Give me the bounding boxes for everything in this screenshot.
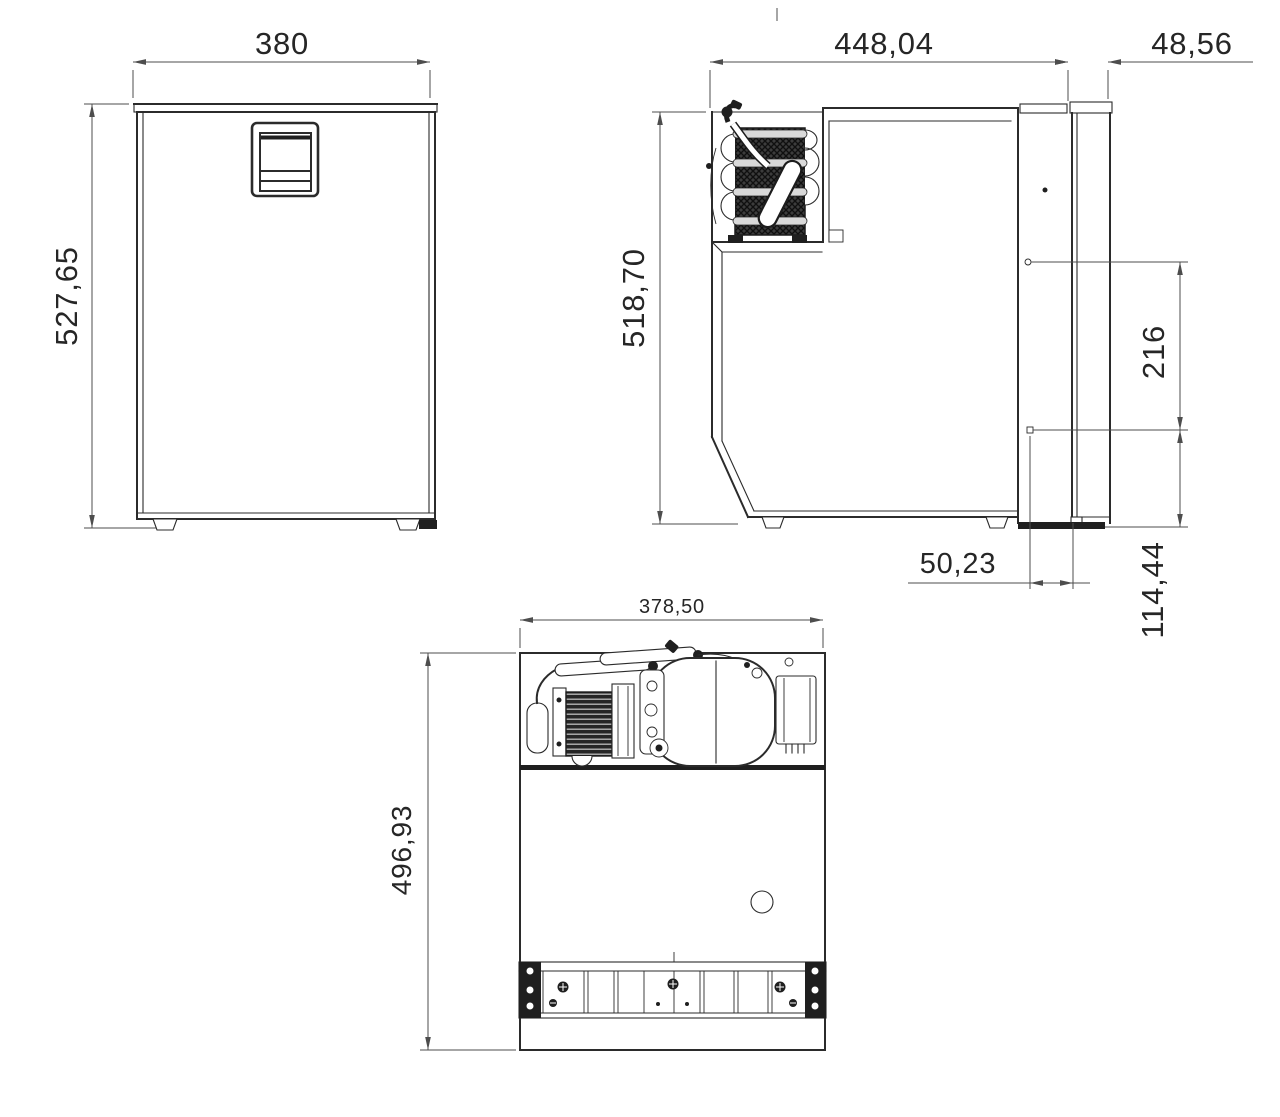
front-right-foot <box>396 519 420 530</box>
side-door-top-cap <box>1070 102 1112 113</box>
side-bottom-gasket <box>1018 522 1105 529</box>
plan-condenser-fan <box>553 684 634 766</box>
plan-compartment-divider <box>520 765 825 770</box>
front-cabinet <box>134 104 437 530</box>
side-door <box>1018 102 1112 529</box>
side-base-height-label: 114,44 <box>1135 541 1170 638</box>
front-left-foot <box>153 519 177 530</box>
side-dim-upper-offset: 216 <box>1025 259 1188 430</box>
side-front-foot <box>986 517 1008 528</box>
side-front-top-cap <box>1020 104 1067 113</box>
technical-drawing-canvas: 380 527,65 <box>0 0 1280 1117</box>
side-height-label: 518,70 <box>616 248 651 348</box>
dimension-drawing: 380 527,65 <box>0 0 1280 1117</box>
front-hinge-cover <box>419 520 437 529</box>
front-view: 380 527,65 <box>49 26 437 530</box>
front-width-label: 380 <box>255 26 309 61</box>
side-rear-foot <box>762 517 784 528</box>
side-upper-offset-label: 216 <box>1136 325 1171 379</box>
side-condenser-unit <box>706 99 819 243</box>
front-top-cap <box>134 104 437 112</box>
side-dim-recess-depth: 50,23 <box>908 436 1090 589</box>
plan-muffler <box>527 703 548 753</box>
side-dim-base-height: 114,44 <box>1027 427 1188 639</box>
plan-dim-width: 378,50 <box>520 596 823 648</box>
side-dim-height: 518,70 <box>616 112 738 524</box>
front-dim-width: 380 <box>133 26 430 98</box>
side-dim-depth: 448,04 <box>710 26 1108 108</box>
front-door-handle <box>252 123 318 196</box>
front-height-label: 527,65 <box>49 246 84 346</box>
plan-dim-depth: 496,93 <box>386 653 516 1050</box>
plan-view: 378,50 496,93 <box>386 596 826 1050</box>
side-dim-door-thickness: 48,56 <box>1048 26 1253 62</box>
side-front-dot <box>1043 188 1048 193</box>
side-recess-depth-label: 50,23 <box>920 548 997 580</box>
plan-mounting-rail <box>519 952 826 1018</box>
plan-depth-label: 496,93 <box>386 805 417 895</box>
plan-width-label: 378,50 <box>639 596 705 618</box>
plan-drain-hole <box>751 891 773 913</box>
plan-compressor <box>640 658 775 766</box>
side-depth-label: 448,04 <box>834 26 934 61</box>
side-door-thickness-label: 48,56 <box>1151 26 1233 61</box>
side-view: 448,04 48,56 518,70 <box>616 26 1253 639</box>
